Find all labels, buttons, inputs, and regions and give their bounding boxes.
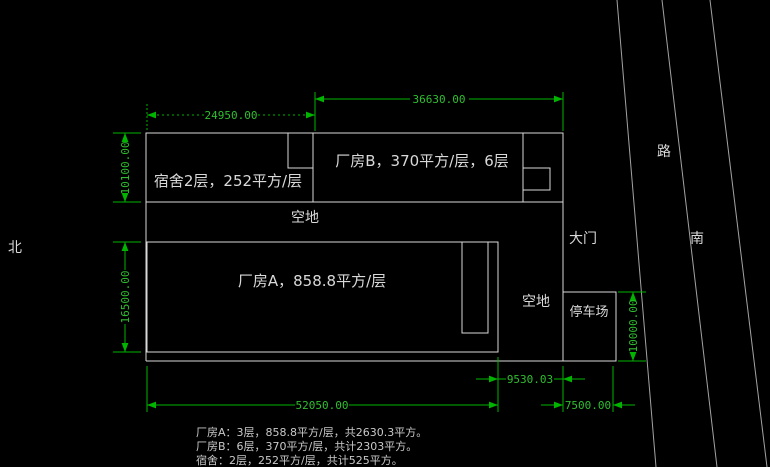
road-edge-line-1: [617, 0, 656, 467]
dim-text-site-width: 52050.00: [296, 399, 349, 412]
cad-viewport[interactable]: 36630.00 24950.00 10100.00 16500.00 5205…: [0, 0, 770, 467]
dim-text-east-gap: 9530.03: [507, 373, 553, 386]
factorya-label: 厂房A，858.8平方/层: [238, 272, 386, 290]
site-plan-drawing: 36630.00 24950.00 10100.00 16500.00 5205…: [0, 0, 770, 467]
open-space-right-label: 空地: [522, 294, 550, 310]
compass-north-label: 北: [8, 240, 22, 256]
dim-text-parking-height: 10000.00: [627, 300, 640, 353]
note-factoryb: 厂房B：6层，370平方/层，共计2303平方。: [196, 439, 417, 453]
dim-text-factoryb-width: 36630.00: [413, 93, 466, 106]
open-space-top-label: 空地: [291, 210, 319, 226]
road-south-label: 南: [690, 231, 704, 247]
note-dormitory: 宿舍：2层，252平方/层，共计525平方。: [196, 453, 403, 467]
dim-text-dormitory-width: 24950.00: [205, 109, 258, 122]
dormitory-corner-room-wall: [288, 133, 313, 168]
gate-label: 大门: [569, 231, 597, 247]
note-factorya: 厂房A：3层，858.8平方/层，共2630.3平方。: [196, 425, 427, 439]
dim-text-upper-block-height: 10100.00: [119, 142, 132, 195]
road-edge-line-3: [710, 0, 767, 467]
dim-text-road-setback: 7500.00: [565, 399, 611, 412]
dormitory-label: 宿舍2层，252平方/层: [154, 172, 302, 190]
factoryb-stair-box-wall: [523, 168, 550, 190]
parking-label: 停车场: [569, 304, 608, 320]
factorya-outline: [147, 242, 498, 352]
road-name-label: 路: [657, 144, 671, 160]
factoryb-label: 厂房B，370平方/层，6层: [335, 152, 509, 170]
factorya-stair-slot-wall: [462, 242, 488, 333]
dim-text-factorya-height: 16500.00: [119, 271, 132, 324]
parking-lot-outline: [563, 292, 616, 361]
